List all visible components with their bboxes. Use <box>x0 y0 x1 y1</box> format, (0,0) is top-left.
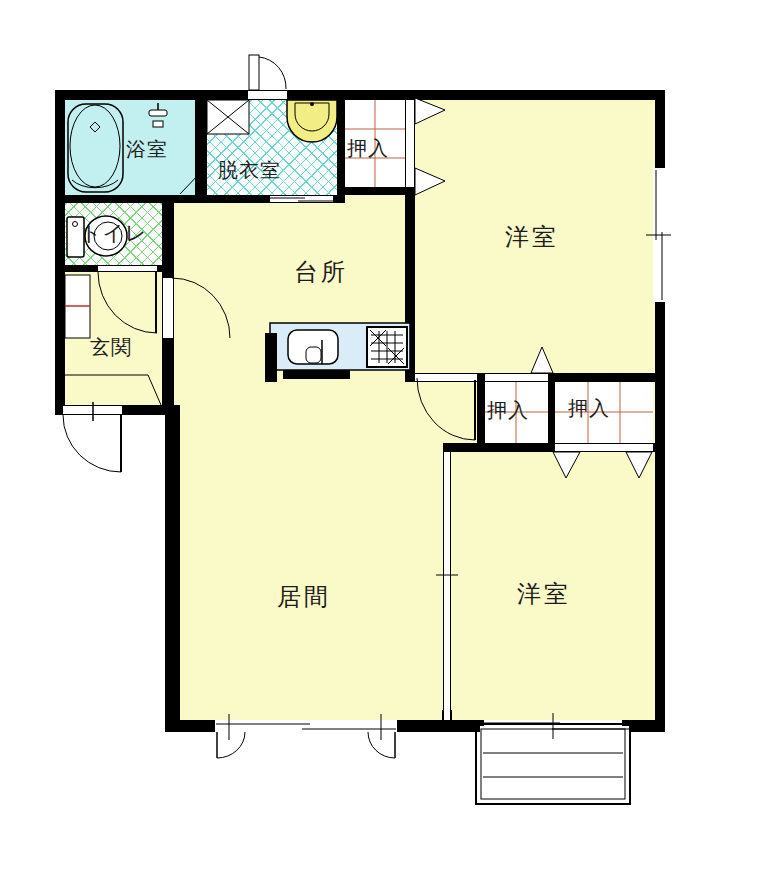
window-balcony-opening <box>480 720 630 732</box>
toilet-door-opening <box>98 265 157 272</box>
label-western-room-bottom: 洋室 <box>517 582 571 606</box>
label-living-room: 居間 <box>277 585 331 609</box>
dressing-sliding-door <box>270 195 333 203</box>
wall-top <box>55 90 665 100</box>
backdoor-opening <box>248 90 287 100</box>
label-kitchen: 台所 <box>294 260 348 284</box>
entrance-door-opening <box>63 405 122 415</box>
wall-bath-divider <box>195 100 207 195</box>
label-closet-mid-left: 押入 <box>487 400 529 420</box>
closet-top-opening <box>405 100 415 187</box>
label-entrance: 玄関 <box>90 337 132 357</box>
hall-kitchen-door-opening <box>162 278 174 338</box>
balcony-fence <box>476 720 630 804</box>
label-closet-mid-right: 押入 <box>568 398 610 418</box>
wall-closet-top-south <box>337 187 407 195</box>
western-top-door-opening <box>415 373 477 382</box>
wall-closet-mid <box>548 373 555 452</box>
wall-left <box>55 90 65 415</box>
label-bathroom: 浴室 <box>126 139 168 159</box>
floor-plan: 浴室 脱衣室 トイレ 玄関 台所 居間 洋室 洋室 押入 押入 押入 <box>0 0 763 869</box>
wall-dressing-south-stub <box>333 195 345 203</box>
wall-kitchen-divider <box>405 187 415 373</box>
closet-down-opening <box>555 443 653 452</box>
wall-closet-top-west <box>337 90 345 195</box>
wall-west-lower <box>165 405 180 720</box>
label-dressing-room: 脱衣室 <box>218 160 281 180</box>
outside-area-southwest <box>0 415 165 869</box>
backdoor <box>249 55 286 90</box>
closet-up-opening <box>485 373 548 382</box>
label-western-room-top: 洋室 <box>505 225 559 249</box>
window-right-opening <box>653 168 667 302</box>
wall-closet-ml-west <box>477 373 485 452</box>
window-living-opening <box>215 720 397 732</box>
label-toilet: トイレ <box>80 223 147 244</box>
sliding-partition-living-western <box>443 452 451 720</box>
label-closet-top: 押入 <box>347 138 389 158</box>
